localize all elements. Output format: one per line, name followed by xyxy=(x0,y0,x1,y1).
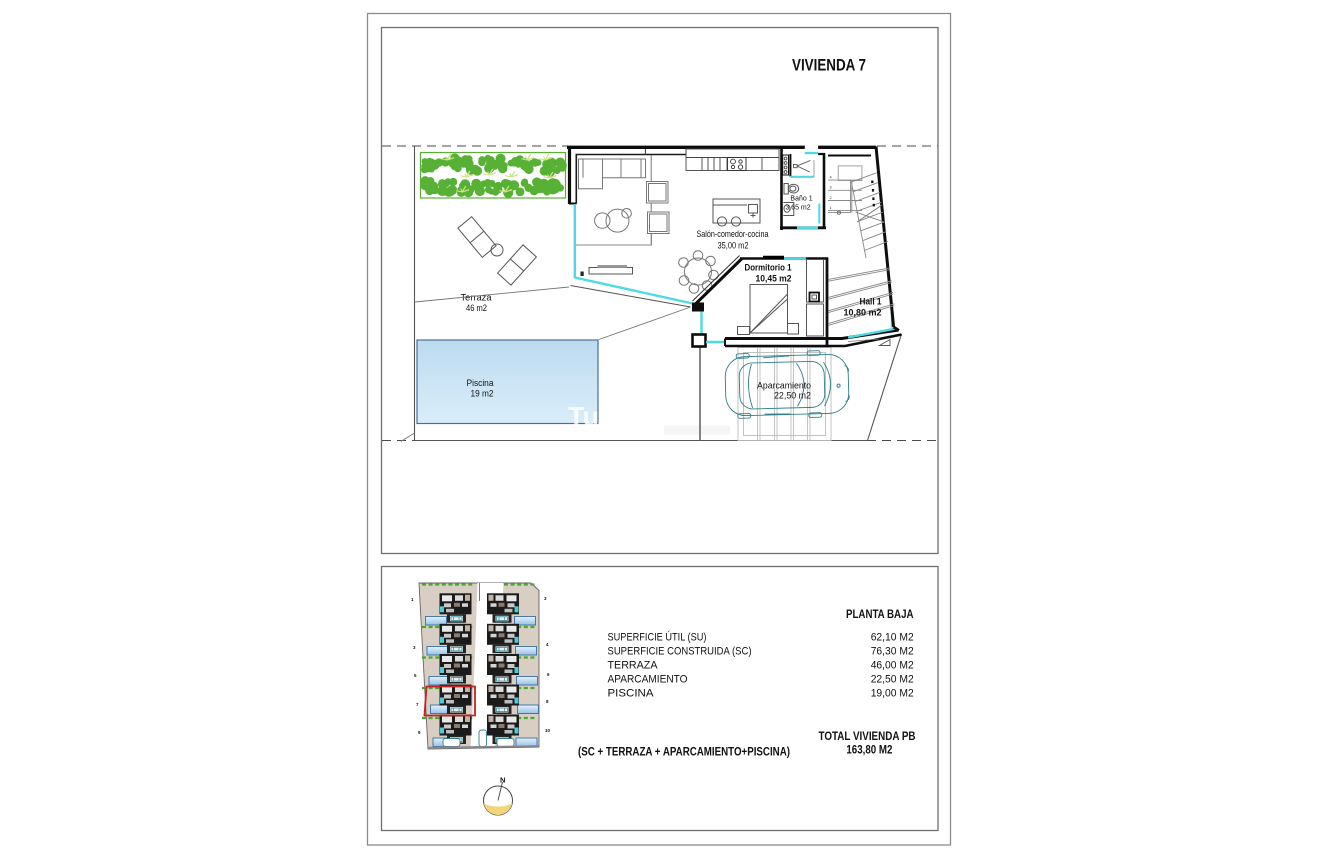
svg-text:22,50 m2: 22,50 m2 xyxy=(774,391,811,401)
svg-text:3: 3 xyxy=(830,186,832,190)
svg-text:76,30 M2: 76,30 M2 xyxy=(871,646,914,658)
svg-text:Aparcamiento: Aparcamiento xyxy=(757,381,811,391)
svg-text:46 m2: 46 m2 xyxy=(466,303,487,313)
svg-text:Dormitorio 1: Dormitorio 1 xyxy=(745,263,792,273)
svg-text:19 m2: 19 m2 xyxy=(471,389,494,399)
svg-text:10,80 m2: 10,80 m2 xyxy=(844,308,882,318)
svg-text:Hall 1: Hall 1 xyxy=(860,297,882,307)
svg-text:2: 2 xyxy=(830,196,832,200)
svg-text:PLANTA BAJA: PLANTA BAJA xyxy=(846,607,914,621)
svg-text:10,45 m2: 10,45 m2 xyxy=(756,274,792,284)
svg-text:SUPERFICIE ÚTIL (SU): SUPERFICIE ÚTIL (SU) xyxy=(608,631,707,644)
svg-text:62,10 M2: 62,10 M2 xyxy=(871,632,914,644)
svg-text:SUPERFICIE CONSTRUIDA (SC): SUPERFICIE CONSTRUIDA (SC) xyxy=(608,646,752,658)
svg-text:TERRAZA: TERRAZA xyxy=(608,660,659,672)
svg-text:PISCINA: PISCINA xyxy=(608,688,655,700)
svg-text:(SC + TERRAZA + APARCAMIENTO+P: (SC + TERRAZA + APARCAMIENTO+PISCINA) xyxy=(578,747,790,759)
svg-text:46,00 M2: 46,00 M2 xyxy=(871,660,914,672)
svg-text:22,50 M2: 22,50 M2 xyxy=(871,674,914,686)
svg-text:Salón-comedor-cocina: Salón-comedor-cocina xyxy=(697,229,769,239)
svg-text:1: 1 xyxy=(830,206,832,210)
svg-text:Tu: Tu xyxy=(568,402,599,432)
svg-text:35,00 m2: 35,00 m2 xyxy=(718,241,749,251)
svg-text:APARCAMIENTO: APARCAMIENTO xyxy=(608,674,688,686)
svg-text:4: 4 xyxy=(830,176,832,180)
svg-text:Piscina: Piscina xyxy=(467,378,494,388)
svg-text:19,00 M2: 19,00 M2 xyxy=(871,688,914,700)
svg-text:N: N xyxy=(500,776,505,785)
svg-text:VIVIENDA 7: VIVIENDA 7 xyxy=(792,57,866,75)
svg-text:3,65 m2: 3,65 m2 xyxy=(785,205,810,212)
svg-text:10: 10 xyxy=(545,728,551,733)
svg-text:163,80 M2: 163,80 M2 xyxy=(846,745,892,757)
svg-text:TOTAL VIVIENDA PB: TOTAL VIVIENDA PB xyxy=(819,731,916,743)
svg-text:Baño 1: Baño 1 xyxy=(790,196,812,203)
